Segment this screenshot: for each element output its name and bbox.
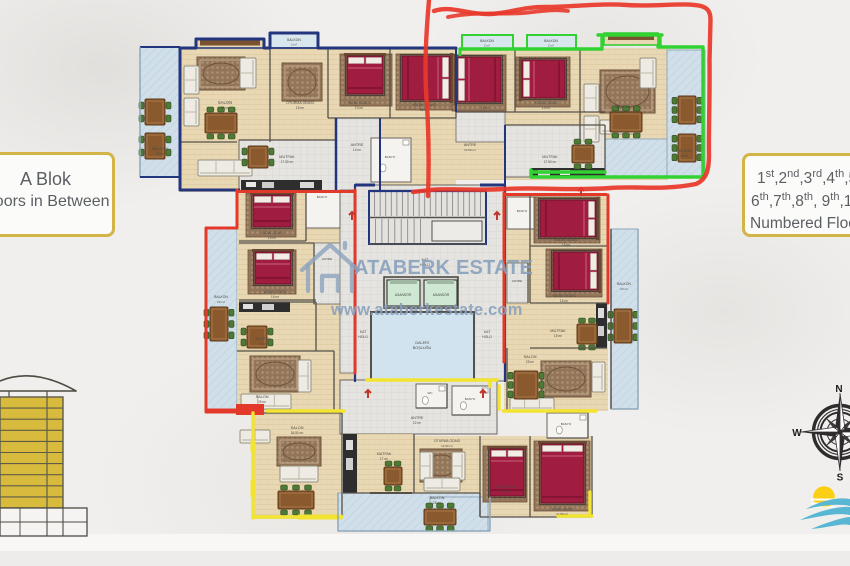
svg-text:YATAK ODASI: YATAK ODASI bbox=[260, 231, 283, 235]
svg-text:HOLÜ: HOLÜ bbox=[482, 335, 492, 339]
svg-text:BALKON: BALKON bbox=[430, 496, 445, 500]
svg-text:YATAK ODASI: YATAK ODASI bbox=[554, 238, 577, 242]
svg-text:22 m²: 22 m² bbox=[413, 421, 421, 425]
svg-text:BANYO: BANYO bbox=[317, 195, 328, 199]
svg-text:GALERİ: GALERİ bbox=[415, 340, 429, 345]
svg-text:SALON: SALON bbox=[256, 395, 269, 399]
svg-text:YATAK ODASI: YATAK ODASI bbox=[552, 294, 575, 298]
svg-text:15 m²: 15 m² bbox=[554, 334, 562, 338]
svg-text:S: S bbox=[837, 473, 844, 484]
svg-text:ANTRE: ANTRE bbox=[411, 416, 424, 420]
svg-text:2 m²: 2 m² bbox=[291, 43, 297, 47]
svg-text:MUTFAK: MUTFAK bbox=[542, 155, 558, 159]
svg-text:ASANSÖR: ASANSÖR bbox=[433, 293, 450, 297]
svg-text:34,50 m²: 34,50 m² bbox=[291, 431, 304, 435]
svg-text:YATAK ODASI: YATAK ODASI bbox=[551, 507, 573, 511]
svg-text:17.50 m²: 17.50 m² bbox=[544, 160, 557, 164]
svg-text:13,50 m²: 13,50 m² bbox=[499, 489, 511, 493]
svg-text:BALKON: BALKON bbox=[480, 39, 494, 43]
svg-text:BANYO: BANYO bbox=[385, 155, 396, 159]
svg-text:16 m²: 16 m² bbox=[271, 295, 279, 299]
svg-text:BANYO: BANYO bbox=[517, 209, 528, 213]
svg-text:32 m²: 32 m² bbox=[221, 106, 231, 110]
svg-text:15 m²: 15 m² bbox=[296, 106, 304, 110]
svg-text:14 m²: 14 m² bbox=[353, 148, 361, 152]
svg-text:OTURMA ODASI: OTURMA ODASI bbox=[434, 439, 460, 443]
svg-text:WC: WC bbox=[428, 391, 434, 395]
svg-text:14,50 m²: 14,50 m² bbox=[441, 444, 453, 448]
svg-text:17 m²: 17 m² bbox=[380, 457, 388, 461]
svg-text:17,50 m²: 17,50 m² bbox=[556, 512, 568, 516]
svg-text:25 m²: 25 m² bbox=[258, 400, 266, 404]
svg-text:14 m²: 14 m² bbox=[562, 243, 570, 247]
svg-text:BALKON: BALKON bbox=[287, 38, 301, 42]
svg-text:ANTRE: ANTRE bbox=[464, 143, 477, 147]
svg-text:W: W bbox=[792, 428, 802, 439]
svg-text:MUTFAK: MUTFAK bbox=[550, 329, 566, 333]
svg-text:KAT: KAT bbox=[360, 330, 366, 334]
svg-text:BALKON: BALKON bbox=[676, 149, 692, 153]
svg-text:BALKON: BALKON bbox=[617, 282, 631, 286]
svg-text:16 m²: 16 m² bbox=[560, 299, 568, 303]
svg-text:SALON: SALON bbox=[524, 355, 537, 359]
svg-text:YATAK ODASI: YATAK ODASI bbox=[347, 101, 370, 105]
svg-text:BALKON: BALKON bbox=[214, 295, 228, 299]
svg-text:32 m²: 32 m² bbox=[618, 110, 626, 114]
svg-text:YATAK ODASI: YATAK ODASI bbox=[263, 290, 286, 294]
svg-text:13.50 m²: 13.50 m² bbox=[464, 148, 476, 152]
svg-text:OTURMA ODASI: OTURMA ODASI bbox=[286, 101, 314, 105]
svg-text:15 m²: 15 m² bbox=[259, 342, 267, 346]
svg-text:KAT: KAT bbox=[484, 330, 490, 334]
svg-text:ANTRE: ANTRE bbox=[351, 143, 364, 147]
svg-text:HOLÜ: HOLÜ bbox=[358, 335, 368, 339]
svg-text:20 m²: 20 m² bbox=[217, 300, 225, 304]
svg-text:BANYO: BANYO bbox=[465, 397, 476, 401]
svg-text:25 m²: 25 m² bbox=[433, 501, 441, 505]
svg-text:2 m²: 2 m² bbox=[484, 44, 490, 48]
svg-text:23 m²: 23 m² bbox=[156, 152, 164, 156]
svg-text:SALON: SALON bbox=[615, 104, 629, 109]
svg-text:BALKON: BALKON bbox=[152, 147, 168, 151]
svg-text:YATAK ODASI: YATAK ODASI bbox=[412, 103, 435, 107]
svg-text:20 m²: 20 m² bbox=[620, 287, 628, 291]
svg-text:ANTRE: ANTRE bbox=[322, 257, 332, 261]
svg-text:YATAK ODASI: YATAK ODASI bbox=[473, 101, 496, 105]
svg-text:15 m²: 15 m² bbox=[481, 106, 489, 110]
svg-text:MUTFAK: MUTFAK bbox=[279, 155, 295, 159]
svg-text:BOŞLUĞU: BOŞLUĞU bbox=[413, 345, 432, 350]
svg-text:MUTFAK: MUTFAK bbox=[377, 452, 392, 456]
svg-text:2 m²: 2 m² bbox=[548, 44, 554, 48]
svg-text:14 m²: 14 m² bbox=[268, 236, 276, 240]
svg-text:ASANSÖR: ASANSÖR bbox=[395, 293, 412, 297]
svg-text:25 m²: 25 m² bbox=[526, 360, 534, 364]
svg-text:SALON: SALON bbox=[218, 100, 232, 105]
svg-text:MUTFAK: MUTFAK bbox=[255, 337, 271, 341]
svg-text:BALKON: BALKON bbox=[544, 39, 558, 43]
svg-text:23 m²: 23 m² bbox=[680, 154, 688, 158]
svg-text:13 m²: 13 m² bbox=[355, 106, 363, 110]
svg-text:YATAK ODASI: YATAK ODASI bbox=[534, 101, 557, 105]
svg-text:N: N bbox=[835, 384, 842, 395]
svg-text:SALON: SALON bbox=[291, 426, 304, 430]
svg-text:17.50 m²: 17.50 m² bbox=[281, 160, 294, 164]
svg-text:15 m²: 15 m² bbox=[542, 106, 550, 110]
svg-text:BANYO: BANYO bbox=[561, 422, 572, 426]
